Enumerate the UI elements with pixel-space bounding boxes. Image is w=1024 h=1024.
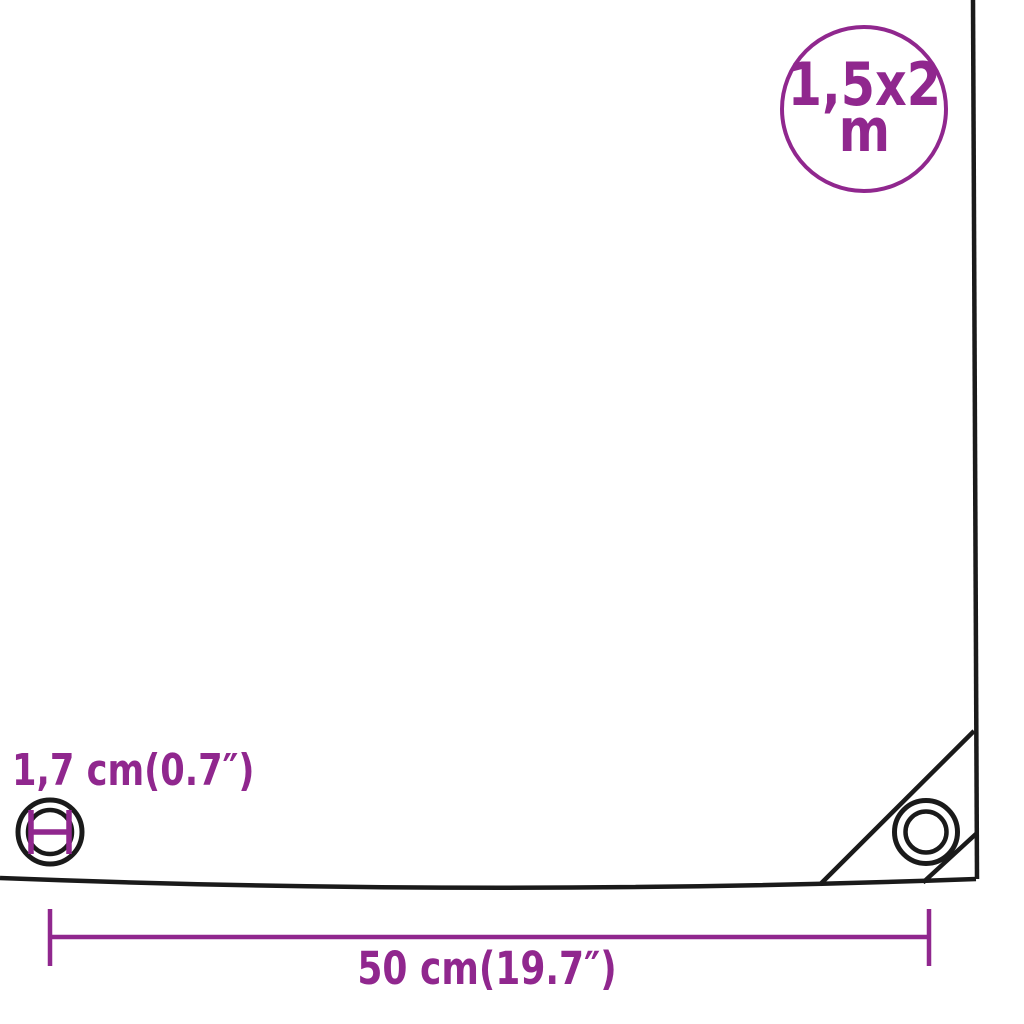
- grommet-spacing-label: 50 cm(19.7″): [231, 946, 743, 991]
- size-badge: 1,5x2 m: [780, 25, 948, 193]
- grommet-diameter-label: 1,7 cm(0.7″): [12, 749, 254, 793]
- tarp-right-edge: [973, 0, 977, 879]
- corner-seam-large: [820, 731, 974, 885]
- tarp-bottom-edge: [0, 878, 976, 888]
- size-badge-text: 1,5x2 m: [787, 63, 940, 154]
- corner-grommet-icon: [895, 801, 958, 864]
- grommet-diameter-icon: [18, 800, 82, 864]
- product-dimension-diagram: 1,5x2 m 1,7 cm(0.7″) 50 cm(19.7″): [0, 0, 1024, 1024]
